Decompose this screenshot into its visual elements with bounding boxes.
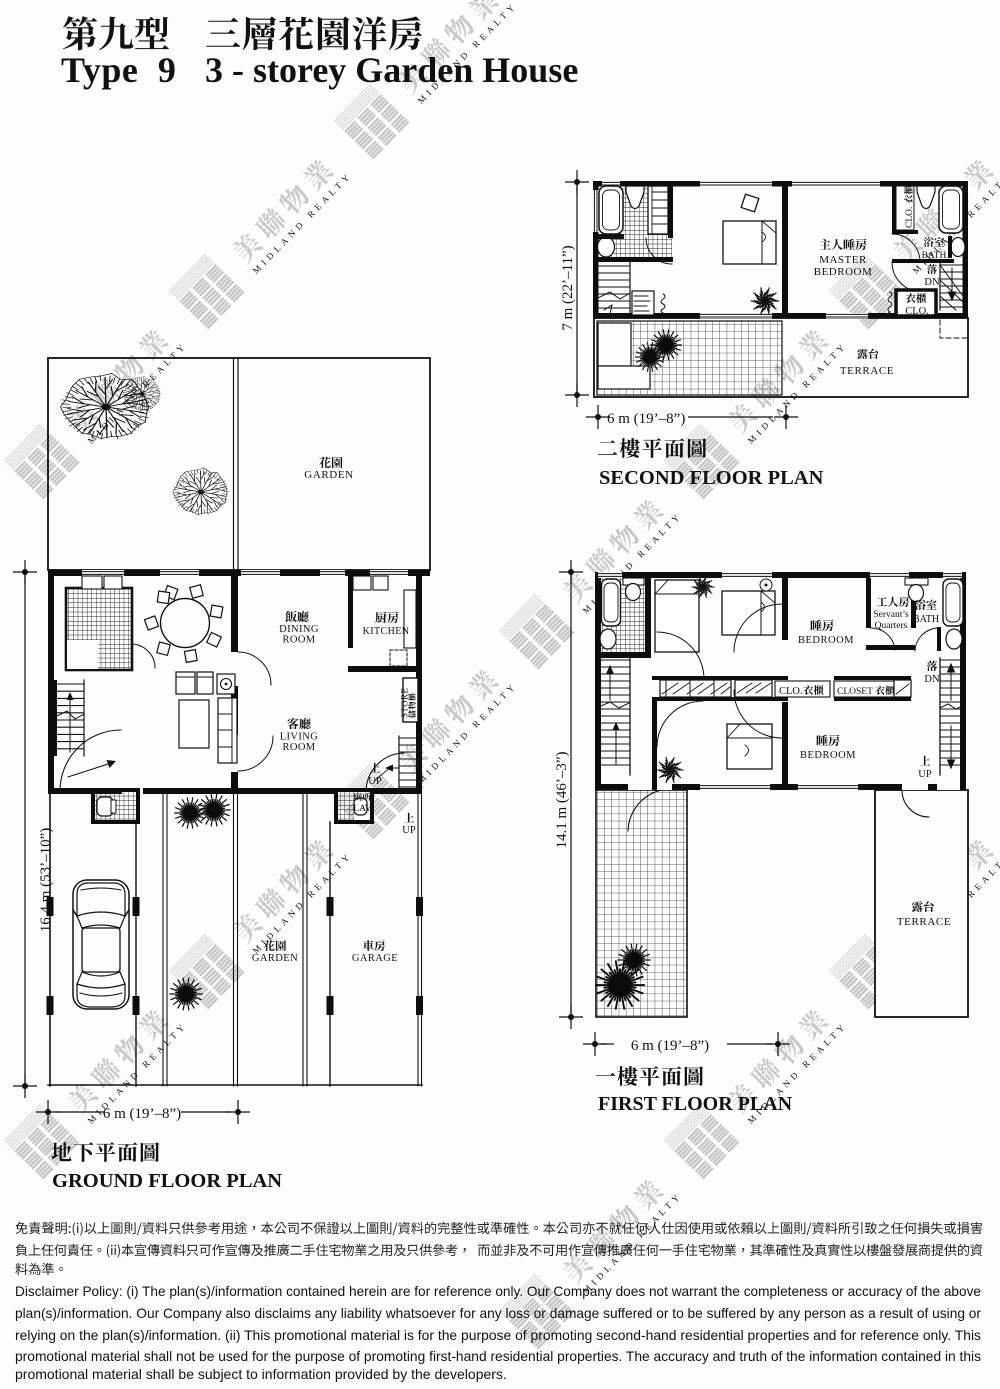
svg-text:MASTER: MASTER xyxy=(819,254,867,266)
svg-text:relying on the plan(s)/informa: relying on the plan(s)/information. (ii)… xyxy=(15,1327,981,1343)
svg-text:ROOM: ROOM xyxy=(282,742,315,753)
svg-text:14.1 m (46’–3”): 14.1 m (46’–3”) xyxy=(554,751,570,848)
svg-text:BATH: BATH xyxy=(913,614,939,625)
svg-text:KITCHEN: KITCHEN xyxy=(363,626,410,637)
svg-text:16.4 m (53’–10”): 16.4 m (53’–10”) xyxy=(38,828,54,933)
svg-text:Type 9: Type 9 xyxy=(61,50,176,90)
svg-text:6 m (19’–8”): 6 m (19’–8”) xyxy=(607,411,685,427)
svg-text:LAV.: LAV. xyxy=(353,804,372,814)
svg-text:Disclaimer Policy: (i) The pla: Disclaimer Policy: (i) The plan(s)/infor… xyxy=(15,1283,981,1299)
svg-text:TERRACE: TERRACE xyxy=(897,916,951,928)
svg-text:DN: DN xyxy=(924,674,940,685)
svg-text:FIRST FLOOR PLAN: FIRST FLOOR PLAN xyxy=(598,1093,793,1115)
svg-text:CLO.: CLO. xyxy=(779,686,803,697)
svg-text:GROUND FLOOR PLAN: GROUND FLOOR PLAN xyxy=(52,1170,282,1192)
svg-text:Servant’s: Servant’s xyxy=(873,610,909,620)
svg-text:UP: UP xyxy=(368,776,382,787)
svg-text:3 - storey Garden House: 3 - storey Garden House xyxy=(205,50,578,90)
svg-text:BEDROOM: BEDROOM xyxy=(798,635,854,646)
svg-text:STORE: STORE xyxy=(400,688,410,718)
svg-text:CLO.: CLO. xyxy=(905,207,915,228)
svg-text:ROOM: ROOM xyxy=(282,635,315,646)
svg-text:CLOSET: CLOSET xyxy=(837,687,873,697)
svg-text:promotional material shall be: promotional material shall be subject to… xyxy=(15,1366,507,1382)
svg-text:TERRACE: TERRACE xyxy=(840,365,894,377)
svg-text:SECOND FLOOR PLAN: SECOND FLOOR PLAN xyxy=(599,467,824,489)
svg-text:LIVING: LIVING xyxy=(280,732,319,743)
svg-text:DN: DN xyxy=(924,277,940,288)
svg-text:UP: UP xyxy=(918,769,932,780)
svg-text:BEDROOM: BEDROOM xyxy=(814,266,873,278)
svg-text:GARAGE: GARAGE xyxy=(352,953,398,964)
svg-text:GARDEN: GARDEN xyxy=(252,953,298,964)
svg-text:promotional material shall not: promotional material shall not be used f… xyxy=(15,1348,981,1364)
svg-text:BEDROOM: BEDROOM xyxy=(800,750,856,761)
svg-text:6 m (19’–8”): 6 m (19’–8”) xyxy=(103,1106,181,1122)
svg-text:UP: UP xyxy=(402,825,416,836)
svg-text:GARDEN: GARDEN xyxy=(304,469,353,481)
svg-text:7 m (22’–11”): 7 m (22’–11”) xyxy=(560,245,576,330)
svg-text:DINING: DINING xyxy=(279,624,319,635)
svg-text:6 m (19’–8”): 6 m (19’–8”) xyxy=(631,1038,709,1054)
svg-text:plan(s)/information. Our Compa: plan(s)/information. Our Company also di… xyxy=(15,1305,981,1321)
svg-text:CLO.: CLO. xyxy=(905,306,929,317)
